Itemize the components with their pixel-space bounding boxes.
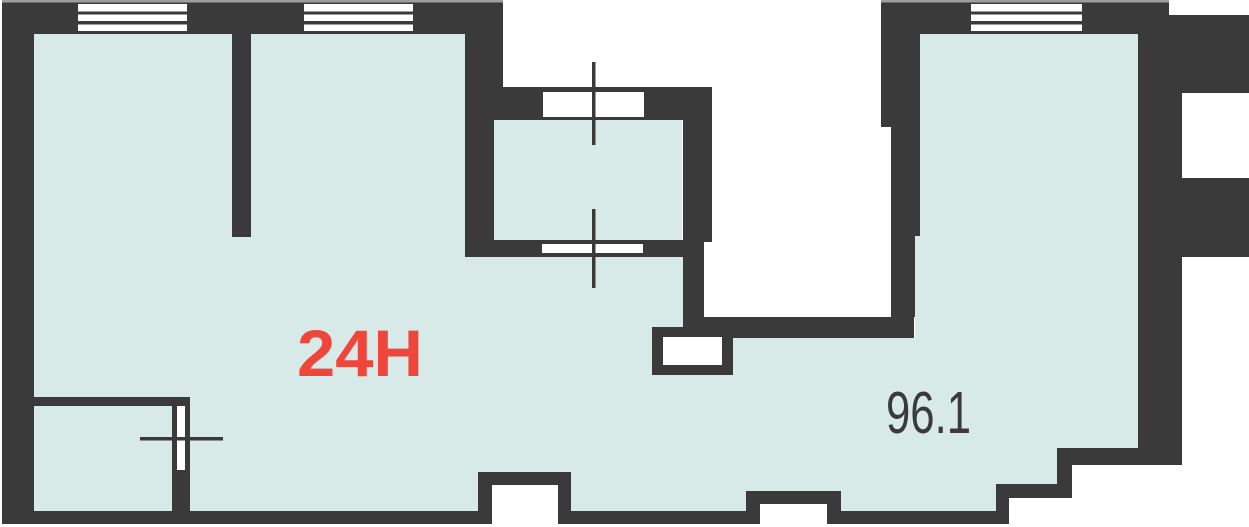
- svg-text:96.1: 96.1: [886, 380, 971, 446]
- svg-text:24H: 24H: [297, 316, 423, 390]
